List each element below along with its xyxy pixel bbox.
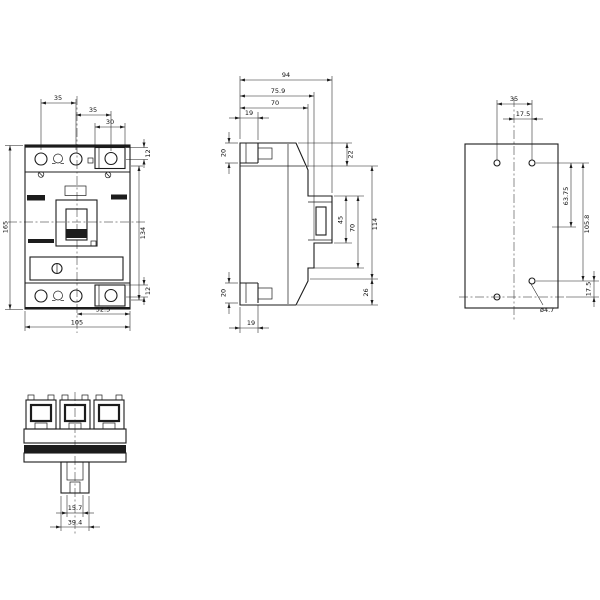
toggle-handle-side bbox=[316, 207, 326, 235]
dim-side-depth-cover: 75.9 bbox=[271, 87, 285, 95]
front-view: 35 35 30 12 165 134 52.5 105 12 bbox=[2, 94, 153, 333]
dim-side-foot-top: 19 bbox=[245, 109, 253, 117]
side-dimension-labels: 94 75.9 70 19 20 20 19 22 45 70 114 26 bbox=[220, 71, 380, 327]
terminal-screw-icon bbox=[35, 290, 47, 302]
side-outline bbox=[240, 143, 332, 305]
front-bottom-terminals bbox=[35, 285, 125, 306]
dim-side-bracket-bottom: 20 bbox=[220, 289, 228, 297]
terminal-screw-icon bbox=[35, 153, 47, 165]
dim-side-bottom-edge: 26 bbox=[362, 288, 370, 296]
rating-label bbox=[27, 195, 45, 201]
dim-front-width: 105 bbox=[71, 319, 83, 327]
dim-side-bracket-top: 20 bbox=[220, 149, 228, 157]
front-top-terminals bbox=[35, 148, 125, 178]
dim-bottom-slot-width: 15.7 bbox=[68, 504, 82, 512]
hole-diameter-leader bbox=[531, 284, 543, 305]
dim-side-depth: 94 bbox=[282, 71, 290, 79]
rating-label bbox=[111, 195, 127, 200]
clamp-unit bbox=[94, 395, 124, 429]
side-view: 94 75.9 70 19 20 20 19 22 45 70 114 26 bbox=[220, 71, 380, 333]
dim-front-half-width: 52.5 bbox=[96, 306, 110, 314]
dim-side-case-height: 114 bbox=[371, 218, 379, 230]
terminal-screw-icon bbox=[105, 153, 117, 165]
escutcheon bbox=[56, 200, 97, 246]
dim-mounting-hole-offset-bottom: 17.5 bbox=[585, 282, 593, 296]
dim-side-front-panel: 70 bbox=[349, 224, 357, 232]
drawing-canvas: 35 35 30 12 165 134 52.5 105 12 bbox=[0, 0, 600, 600]
dim-bottom-base-width: 39.4 bbox=[68, 519, 82, 527]
mounting-hole bbox=[494, 160, 500, 166]
clamp-icon bbox=[54, 154, 63, 163]
mounting-centerlines bbox=[459, 98, 564, 320]
dim-side-depth-case: 70 bbox=[271, 99, 279, 107]
dim-mounting-hole-pitch-v1: 63.75 bbox=[562, 187, 570, 206]
dim-front-height-inner: 134 bbox=[139, 227, 147, 239]
dim-side-handle-window: 45 bbox=[337, 216, 345, 224]
terminal-screw-icon bbox=[105, 290, 117, 302]
mounting-hole bbox=[529, 160, 535, 166]
front-body-outline bbox=[25, 145, 130, 309]
mounting-holes bbox=[494, 160, 535, 300]
bottom-view: 15.7 39.4 bbox=[24, 392, 126, 535]
dim-mounting-hole-pitch-h: 35 bbox=[510, 95, 518, 103]
bottom-dimension-labels: 15.7 39.4 bbox=[68, 504, 82, 527]
front-dimension-lines bbox=[5, 99, 148, 331]
dim-front-terminal-bottom: 12 bbox=[144, 287, 152, 295]
dim-front-pole-pitch-2: 35 bbox=[89, 106, 97, 114]
terminal-screw-icon bbox=[70, 290, 82, 302]
clamp-icon bbox=[54, 291, 63, 300]
dim-front-pole-pitch-1: 35 bbox=[54, 94, 62, 102]
dim-mounting-hole-pitch-v2: 105.8 bbox=[583, 215, 591, 234]
dim-side-foot-bottom: 19 bbox=[247, 319, 255, 327]
clamp-unit bbox=[26, 395, 56, 429]
dim-mounting-hole-half-pitch: 17.5 bbox=[516, 110, 530, 118]
dim-front-terminal-top: 12 bbox=[144, 149, 152, 157]
dim-mounting-hole-diameter: ø4.7 bbox=[540, 306, 554, 314]
terminal-pad bbox=[258, 288, 272, 299]
type-label bbox=[28, 239, 54, 243]
dim-front-terminal-width: 30 bbox=[106, 118, 114, 126]
terminal-screw-icon bbox=[70, 153, 82, 165]
mounting-dimension-lines bbox=[497, 100, 599, 307]
terminal-pad bbox=[258, 148, 272, 159]
mounting-plate bbox=[465, 144, 558, 308]
dim-front-height: 165 bbox=[2, 221, 10, 233]
mounting-view: 35 17.5 63.75 105.8 17.5 ø4.7 bbox=[459, 95, 599, 320]
dim-side-top-edge: 22 bbox=[347, 150, 355, 158]
dimension-drawing-page: 35 35 30 12 165 134 52.5 105 12 bbox=[0, 0, 600, 600]
mounting-hole bbox=[529, 278, 535, 284]
